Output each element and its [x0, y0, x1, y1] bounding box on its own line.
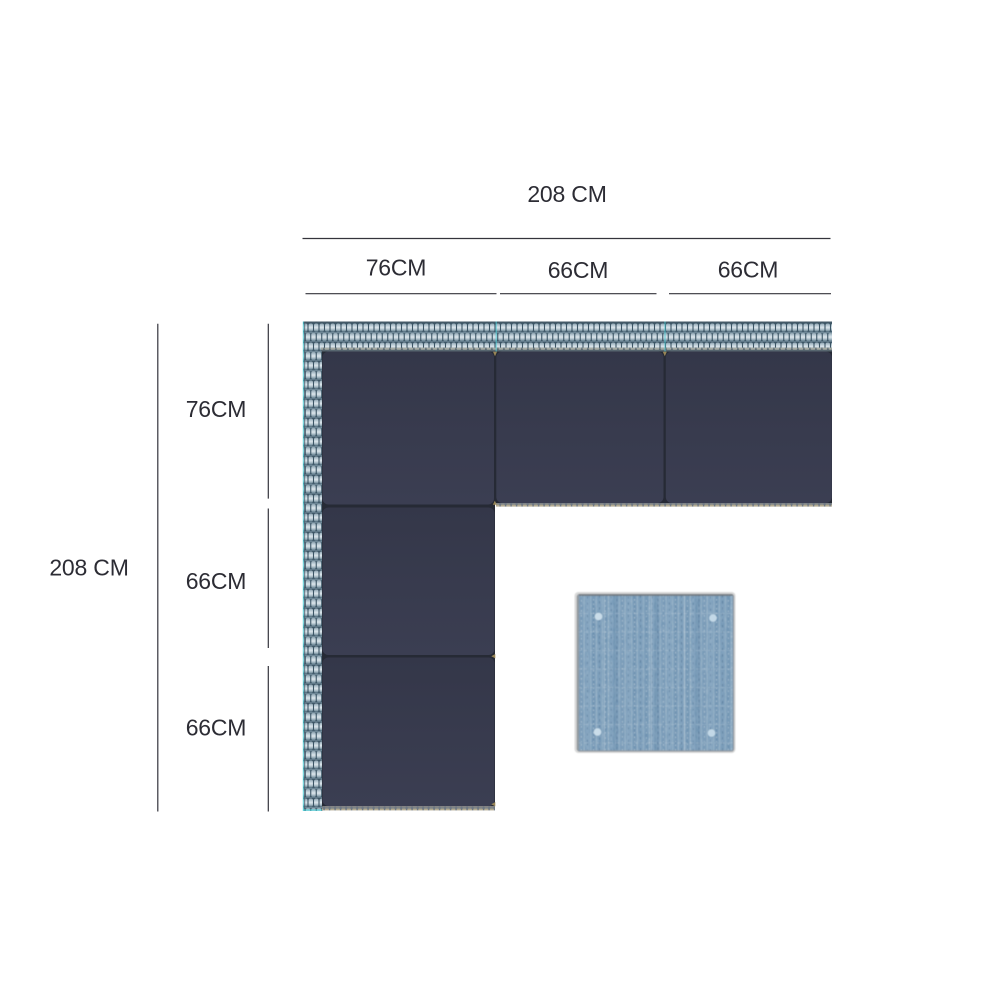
- svg-text:66CM: 66CM: [186, 714, 247, 740]
- svg-text:66CM: 66CM: [718, 256, 779, 282]
- svg-text:76CM: 76CM: [186, 396, 247, 422]
- svg-text:208 CM: 208 CM: [527, 181, 606, 207]
- svg-text:66CM: 66CM: [548, 257, 609, 283]
- svg-text:76CM: 76CM: [366, 255, 427, 281]
- svg-text:66CM: 66CM: [186, 568, 247, 594]
- svg-text:208 CM: 208 CM: [49, 554, 128, 580]
